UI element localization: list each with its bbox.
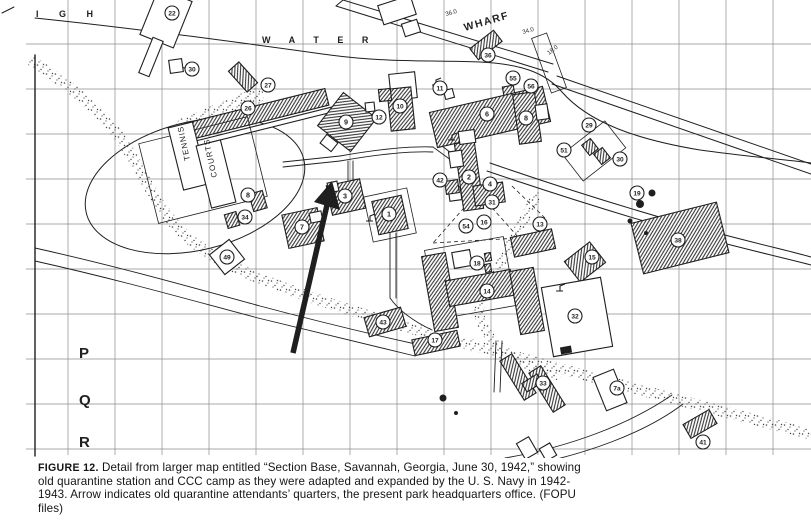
building-number-marker: 56 (524, 79, 538, 93)
svg-text:16: 16 (480, 220, 488, 227)
building-number-marker: 30 (613, 152, 627, 166)
figure-label: FIGURE 12. (38, 462, 99, 474)
svg-text:26: 26 (244, 106, 252, 113)
svg-text:42: 42 (436, 178, 444, 185)
building-footprint (452, 250, 473, 269)
svg-text:31: 31 (488, 200, 496, 207)
building-number-marker: 33 (536, 376, 550, 390)
svg-text:1: 1 (387, 210, 391, 219)
building-number-marker: 8 (519, 111, 533, 125)
svg-text:3: 3 (343, 192, 347, 201)
svg-text:11: 11 (437, 86, 444, 93)
svg-text:36: 36 (484, 53, 492, 60)
svg-text:34: 34 (241, 215, 249, 222)
map-text-label: R (79, 434, 90, 451)
tree-dot (636, 200, 644, 208)
svg-text:51: 51 (560, 148, 568, 155)
building-number-marker: 36 (481, 48, 495, 62)
svg-text:49: 49 (223, 255, 231, 262)
map-canvas: I G HW A T E R36.0WHARF34.018.0PQRTENNIS… (0, 0, 811, 458)
svg-text:30: 30 (188, 67, 196, 74)
map-text-label: P (79, 345, 89, 362)
svg-text:33: 33 (539, 381, 547, 388)
svg-text:15: 15 (588, 255, 596, 262)
building-number-marker: 10 (393, 99, 407, 113)
svg-text:38: 38 (674, 238, 682, 245)
building-number-marker: 26 (241, 101, 255, 115)
building-number-marker: 18 (470, 256, 484, 270)
tree-dot (649, 190, 656, 197)
building-number-marker: 8 (241, 188, 255, 202)
building-number-marker: 17 (428, 333, 442, 347)
svg-text:14: 14 (483, 289, 491, 296)
building-number-marker: 32 (568, 309, 582, 323)
building-footprint (561, 346, 572, 354)
building-footprint (458, 129, 476, 144)
tree-dot (644, 231, 648, 235)
svg-text:12: 12 (375, 115, 383, 122)
svg-text:2: 2 (467, 173, 471, 182)
building-number-marker: 9 (339, 115, 353, 129)
building-number-marker: 42 (433, 173, 447, 187)
building-number-marker: 43 (376, 315, 390, 329)
svg-text:18: 18 (473, 261, 481, 268)
tree-dot (628, 219, 633, 224)
figure-caption-text: Detail from larger map entitled “Section… (38, 461, 581, 515)
svg-text:43: 43 (379, 320, 387, 327)
map-text-label: W A T E R (262, 35, 376, 45)
svg-text:8: 8 (524, 114, 528, 123)
building-footprint (535, 104, 549, 121)
building-number-marker: 31 (485, 195, 499, 209)
svg-text:29: 29 (585, 123, 593, 130)
building-number-marker: 51 (557, 143, 571, 157)
building-number-marker: 15 (585, 250, 599, 264)
svg-text:22: 22 (168, 11, 176, 18)
tree-dot (440, 395, 447, 402)
svg-text:54: 54 (462, 224, 470, 231)
svg-text:17: 17 (431, 338, 439, 345)
building-number-marker: 22 (165, 6, 179, 20)
building-footprint (448, 150, 463, 168)
building-number-marker: 49 (220, 250, 234, 264)
building-number-marker: 2 (462, 170, 476, 184)
svg-text:7: 7 (300, 223, 304, 232)
building-number-marker: 7 (295, 220, 309, 234)
building-footprint (169, 59, 184, 74)
svg-text:55: 55 (509, 76, 517, 83)
svg-text:30: 30 (616, 157, 624, 164)
map-text-label: I G H (36, 9, 102, 19)
building-number-marker: 7a (610, 381, 624, 395)
svg-text:8: 8 (246, 191, 250, 200)
building-number-marker: 13 (533, 217, 547, 231)
svg-text:41: 41 (699, 440, 707, 447)
svg-text:7a: 7a (613, 386, 621, 393)
building-number-marker: 34 (238, 210, 252, 224)
building-number-marker: 27 (261, 78, 275, 92)
map-text-label: Q (79, 392, 91, 409)
building-number-marker: 41 (696, 435, 710, 449)
svg-text:19: 19 (633, 191, 641, 198)
building-number-marker: 3 (338, 189, 352, 203)
building-number-marker: 14 (480, 284, 494, 298)
svg-text:13: 13 (536, 222, 544, 229)
svg-text:6: 6 (485, 110, 489, 119)
building-number-marker: 29 (582, 118, 596, 132)
building-number-marker: 54 (459, 219, 473, 233)
building-number-marker: 6 (480, 107, 494, 121)
building-footprint (365, 102, 375, 112)
building-footprint (378, 88, 391, 101)
building-number-marker: 55 (506, 71, 520, 85)
building-number-marker: 30 (185, 62, 199, 76)
svg-text:32: 32 (571, 314, 579, 321)
svg-text:9: 9 (344, 118, 348, 127)
figure-caption: FIGURE 12. Detail from larger map entitl… (38, 461, 598, 515)
svg-text:4: 4 (488, 180, 492, 189)
building-number-marker: 1 (382, 207, 396, 221)
building-number-marker: 4 (483, 177, 497, 191)
building-number-marker: 16 (477, 215, 491, 229)
svg-text:56: 56 (527, 84, 535, 91)
building-number-marker: 19 (630, 186, 644, 200)
svg-text:27: 27 (264, 83, 272, 90)
building-footprint (484, 253, 491, 262)
building-number-marker: 11 (433, 81, 447, 95)
svg-text:10: 10 (396, 104, 404, 111)
map-svg: I G HW A T E R36.0WHARF34.018.0PQRTENNIS… (0, 0, 811, 458)
building-footprint (484, 264, 491, 273)
tree-dot (454, 411, 458, 415)
building-number-marker: 12 (372, 110, 386, 124)
building-number-marker: 38 (671, 233, 685, 247)
document-page: I G HW A T E R36.0WHARF34.018.0PQRTENNIS… (0, 0, 811, 530)
